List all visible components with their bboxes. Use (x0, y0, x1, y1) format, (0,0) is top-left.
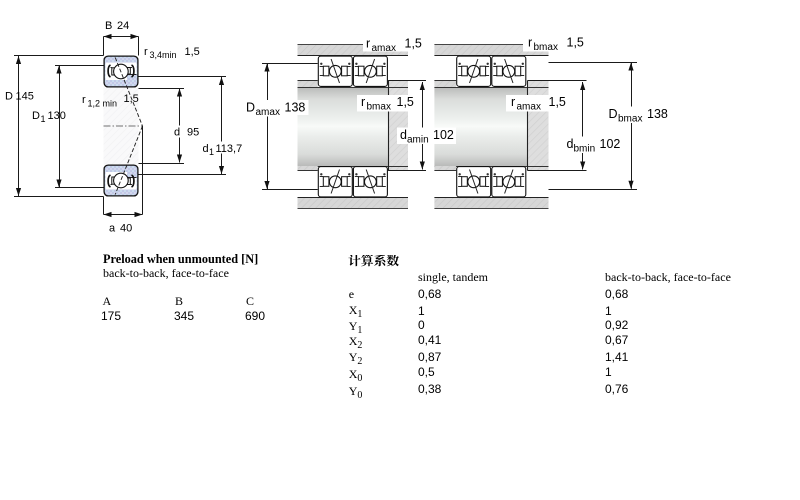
svg-text:1,5: 1,5 (549, 95, 566, 109)
svg-text:1,2 min: 1,2 min (88, 99, 118, 109)
svg-text:1,5: 1,5 (124, 93, 139, 105)
svg-text:D: D (32, 110, 40, 122)
svg-text:amax: amax (517, 102, 541, 113)
svg-text:145: 145 (16, 91, 34, 103)
svg-text:D: D (246, 101, 255, 115)
svg-text:r: r (144, 46, 148, 58)
svg-text:1,5: 1,5 (397, 95, 414, 109)
svg-text:r: r (82, 94, 86, 106)
svg-text:1: 1 (41, 114, 46, 124)
svg-text:amin: amin (407, 135, 429, 146)
svg-text:bmax: bmax (534, 42, 558, 53)
svg-text:amax: amax (372, 43, 396, 54)
svg-text:138: 138 (285, 101, 306, 115)
svg-text:d: d (174, 127, 180, 139)
svg-text:B: B (105, 20, 112, 32)
svg-text:1: 1 (209, 147, 214, 157)
svg-text:130: 130 (48, 110, 66, 122)
svg-text:102: 102 (433, 128, 454, 142)
svg-text:d: d (400, 128, 407, 142)
svg-text:bmin: bmin (574, 144, 596, 155)
svg-text:1,5: 1,5 (185, 46, 200, 58)
svg-text:a: a (109, 223, 116, 235)
svg-text:r: r (528, 36, 532, 50)
svg-text:d: d (203, 143, 209, 155)
svg-text:D: D (5, 91, 13, 103)
svg-text:102: 102 (600, 137, 621, 151)
svg-text:D: D (609, 107, 618, 121)
svg-text:24: 24 (117, 20, 129, 32)
svg-text:113,7: 113,7 (216, 143, 243, 155)
svg-text:amax: amax (256, 107, 280, 118)
svg-text:3,4min: 3,4min (150, 50, 177, 60)
svg-text:40: 40 (120, 223, 132, 235)
svg-text:r: r (361, 95, 365, 109)
svg-text:d: d (567, 137, 574, 151)
svg-text:1,5: 1,5 (405, 37, 422, 51)
svg-text:r: r (511, 95, 515, 109)
svg-text:95: 95 (187, 127, 199, 139)
svg-text:bmax: bmax (618, 114, 642, 125)
svg-text:138: 138 (647, 107, 668, 121)
svg-text:1,5: 1,5 (567, 36, 584, 50)
svg-text:bmax: bmax (367, 102, 391, 113)
svg-text:r: r (366, 37, 370, 51)
